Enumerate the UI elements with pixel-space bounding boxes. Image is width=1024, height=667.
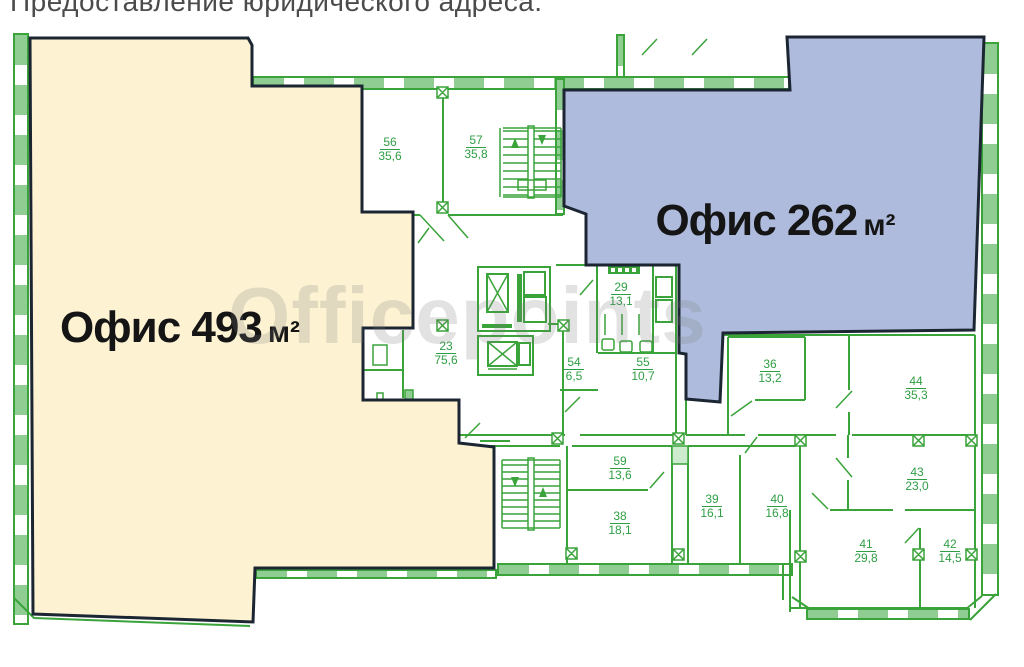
room-label-29: 2913,1 bbox=[596, 281, 646, 308]
room-label-39: 3916,1 bbox=[687, 493, 737, 520]
room-label-41: 4129,8 bbox=[841, 538, 891, 565]
room-label-42: 4214,5 bbox=[925, 538, 975, 565]
room-label-54: 546,5 bbox=[549, 356, 599, 383]
room-label-56: 5635,6 bbox=[365, 136, 415, 163]
room-label-36: 3613,2 bbox=[745, 358, 795, 385]
room-label-44: 4435,3 bbox=[891, 375, 941, 402]
floor-plan-image: Предоставление юридического адреса. bbox=[0, 0, 1024, 667]
room-label-23: 2375,6 bbox=[421, 340, 471, 367]
room-label-40: 4016,8 bbox=[752, 493, 802, 520]
room-label-59: 5913,6 bbox=[595, 455, 645, 482]
office-label-493: Офис 493м² bbox=[40, 303, 320, 353]
room-label-43: 4323,0 bbox=[892, 466, 942, 493]
page-caption: Предоставление юридического адреса. bbox=[10, 0, 543, 18]
room-label-57: 5735,8 bbox=[451, 134, 501, 161]
office-label-262: Офис 262м² bbox=[633, 196, 918, 246]
room-label-38: 3818,1 bbox=[595, 510, 645, 537]
room-label-55: 5510,7 bbox=[618, 356, 668, 383]
